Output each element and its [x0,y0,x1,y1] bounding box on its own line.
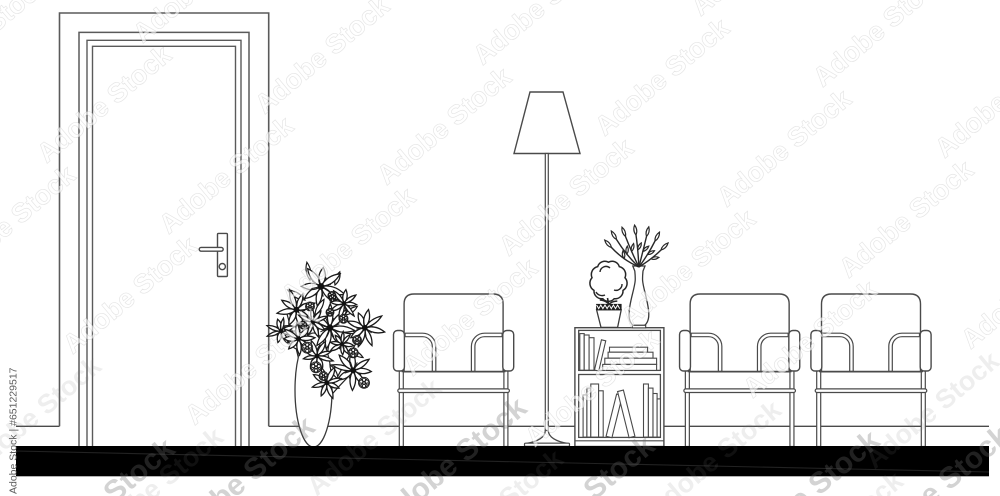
svg-text:Adobe Stock: Adobe Stock [807,0,953,93]
svg-text:Adobe Stock: Adobe Stock [589,12,735,142]
svg-text:Adobe Stock | #651229517: Adobe Stock | #651229517 [8,367,20,494]
svg-text:Adobe Stock: Adobe Stock [955,225,1000,355]
svg-text:Adobe Stock: Adobe Stock [929,34,1000,164]
svg-text:Adobe Stock: Adobe Stock [275,181,421,311]
svg-text:Adobe Stock: Adobe Stock [0,159,82,289]
svg-text:Adobe Stock: Adobe Stock [0,0,56,98]
svg-text:Adobe Stock: Adobe Stock [711,83,857,213]
svg-text:Adobe Stock: Adobe Stock [833,154,979,284]
svg-text:Adobe Stock: Adobe Stock [371,61,517,191]
svg-text:Adobe Stock: Adobe Stock [685,0,831,22]
svg-text:Adobe Stock: Adobe Stock [249,0,395,120]
svg-text:Adobe Stock: Adobe Stock [467,0,613,71]
